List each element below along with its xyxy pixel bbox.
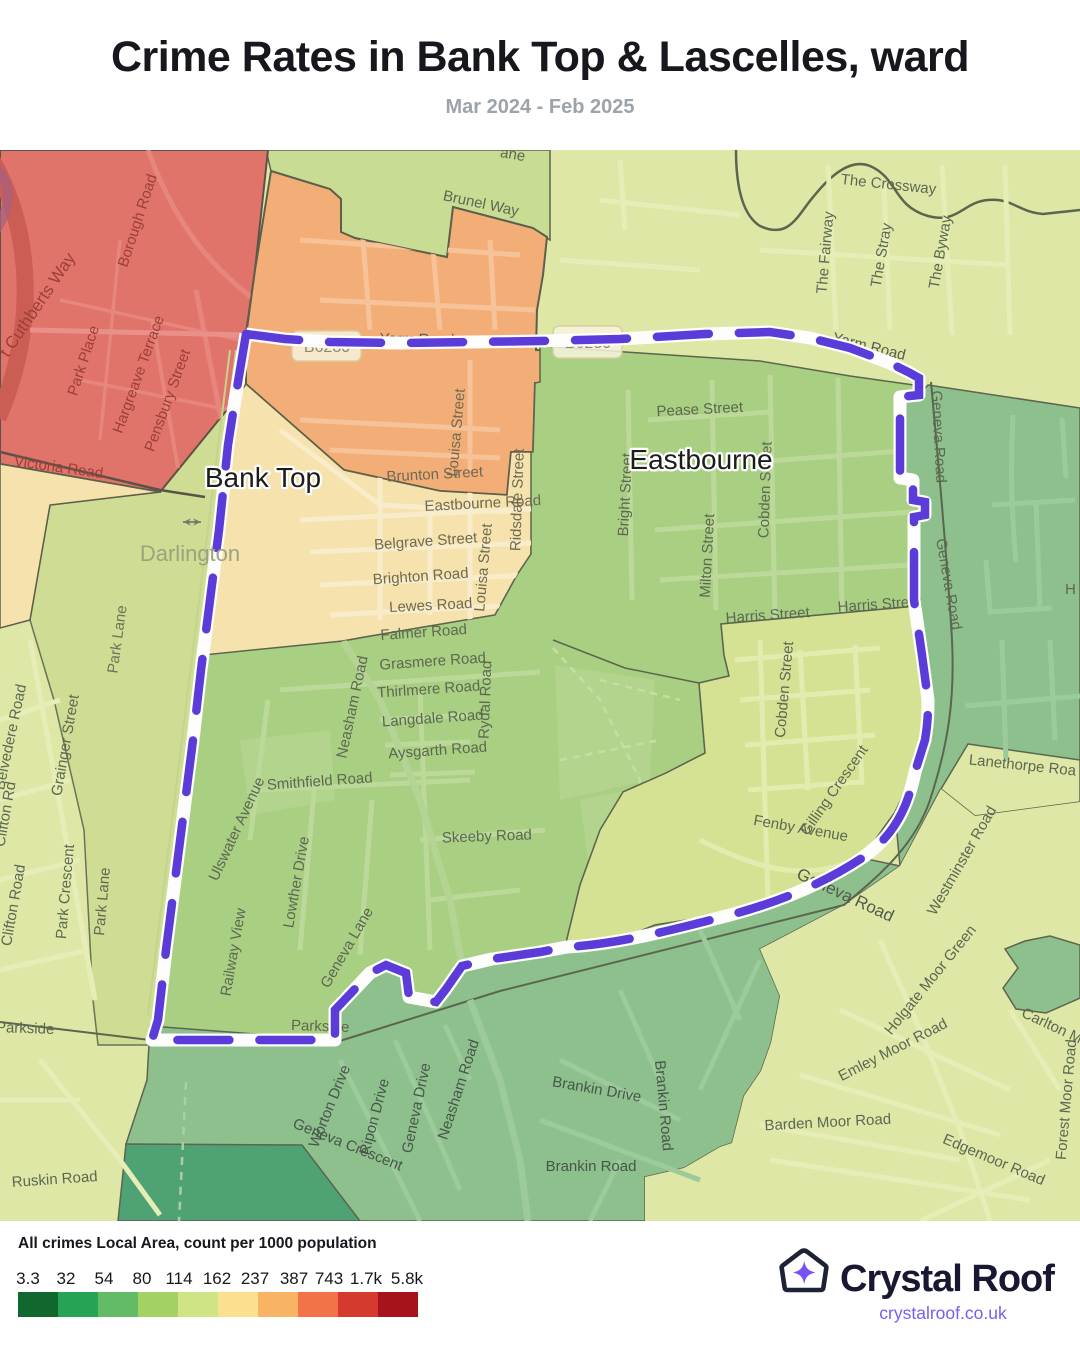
svg-text:Bank Top: Bank Top xyxy=(205,462,321,493)
svg-text:Brankin Road: Brankin Road xyxy=(546,1158,637,1175)
svg-text:Parkside: Parkside xyxy=(0,1019,55,1038)
svg-text:Ridsdale Street: Ridsdale Street xyxy=(507,447,528,551)
svg-text:Eastbourne: Eastbourne xyxy=(629,444,772,475)
svg-text:Skeeby Road: Skeeby Road xyxy=(442,826,533,846)
svg-text:Darlington: Darlington xyxy=(140,541,240,566)
svg-text:Rydal Road: Rydal Road xyxy=(476,660,496,739)
svg-text:H: H xyxy=(1065,581,1076,598)
